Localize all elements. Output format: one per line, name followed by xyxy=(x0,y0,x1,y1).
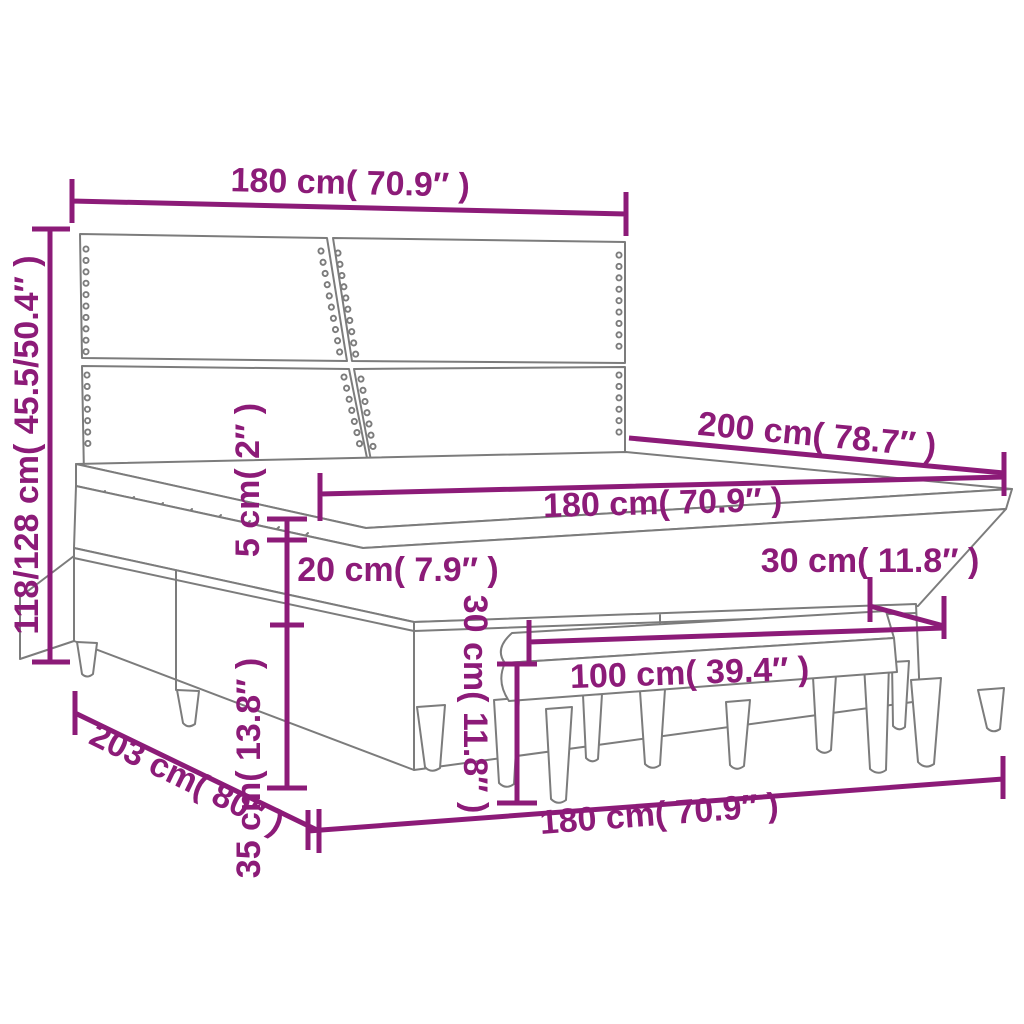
dim-label-mattress-height: 20 cm( 7.9″ ) xyxy=(297,551,499,589)
bed-leg xyxy=(978,688,1004,731)
dim-label-topper-thickness: 5 cm( 2″ ) xyxy=(229,403,267,557)
bed-leg xyxy=(911,678,941,767)
dimension-diagram-page: 180 cm( 70.9″ ) 118/128 cm( 45.5/50.4″ )… xyxy=(0,0,1024,1024)
headboard xyxy=(80,234,625,476)
bench-leg xyxy=(864,663,889,773)
dim-label-headboard-width: 180 cm( 70.9″ ) xyxy=(230,161,470,204)
bench-leg xyxy=(583,694,602,761)
dim-label-headboard-height: 118/128 cm( 45.5/50.4″ ) xyxy=(8,255,46,634)
bed-leg xyxy=(726,700,750,769)
dim-label-bed-front-width: 180 cm( 70.9″ ) xyxy=(538,786,779,842)
bench-leg xyxy=(813,675,836,753)
bed-dimension-diagram: 180 cm( 70.9″ ) 118/128 cm( 45.5/50.4″ )… xyxy=(0,0,1024,1024)
dim-label-mattress-width: 180 cm( 70.9″ ) xyxy=(543,481,783,525)
headboard-panel-upper-left xyxy=(80,234,347,361)
dim-label-bench-height: 30 cm( 11.8″ ) xyxy=(456,595,494,814)
dim-label-base-height: 35 cm( 13.8″ ) xyxy=(230,658,268,878)
bench-leg xyxy=(640,689,665,768)
headboard-panel-lower-right xyxy=(354,367,625,466)
bed-leg xyxy=(77,642,97,677)
bed-leg xyxy=(177,690,199,726)
bed-leg xyxy=(546,707,572,803)
headboard-panel-upper-right xyxy=(333,238,625,363)
dim-label-bench-depth: 30 cm( 11.8″ ) xyxy=(761,542,980,580)
